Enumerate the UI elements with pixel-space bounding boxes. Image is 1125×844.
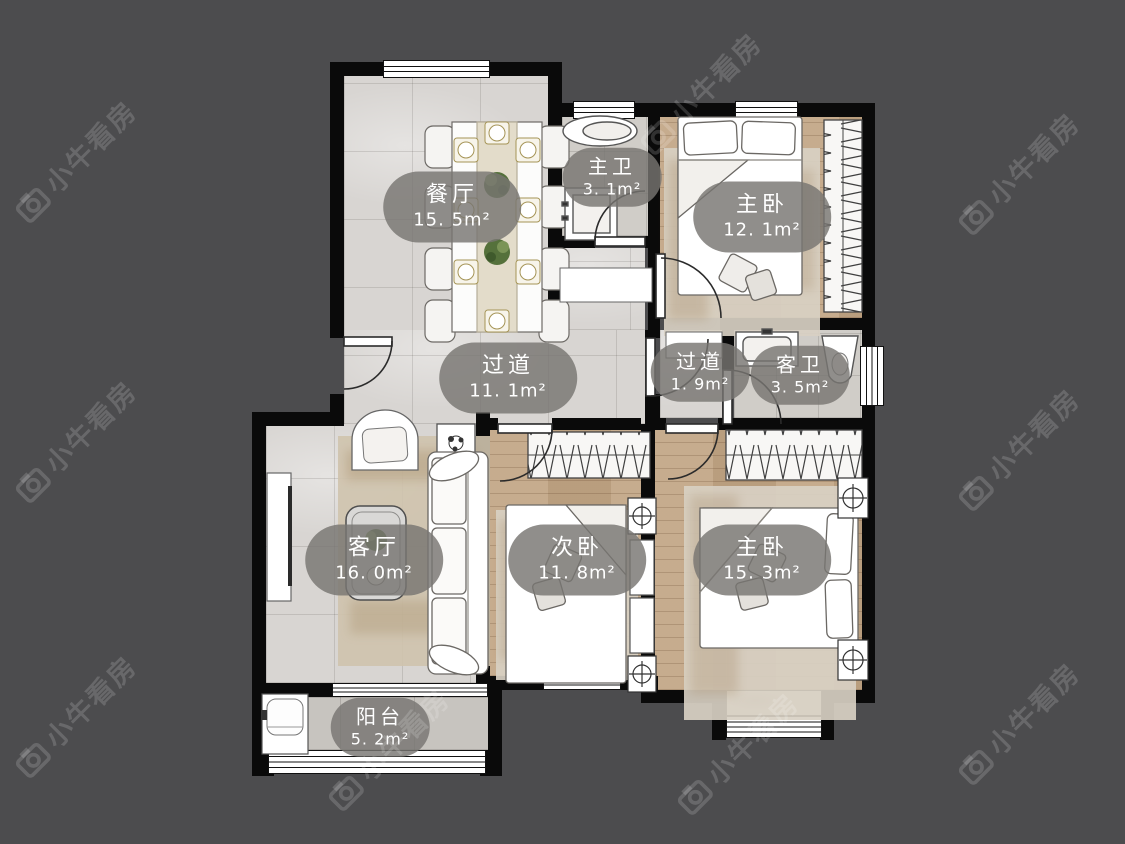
room-area: 1. 9m² — [671, 376, 730, 394]
room-name: 餐厅 — [413, 184, 491, 208]
room-name: 阳台 — [351, 706, 410, 728]
room-area: 11. 1m² — [469, 382, 547, 402]
room-name: 次卧 — [538, 537, 616, 561]
room-label-master-bedroom-bottom: 主卧 15. 3m² — [693, 525, 831, 596]
hallway-cabinet — [560, 268, 652, 302]
room-label-guest-bath: 客卫 3. 5m² — [751, 346, 850, 405]
room-name: 主卫 — [583, 156, 642, 178]
room-name: 过道 — [671, 351, 730, 373]
room-label-dining: 餐厅 15. 5m² — [383, 172, 521, 243]
room-area: 15. 3m² — [723, 564, 801, 584]
room-area: 11. 8m² — [538, 564, 616, 584]
room-label-hallway-small: 过道 1. 9m² — [651, 343, 750, 402]
wardrobe-icon — [726, 430, 862, 480]
room-area: 16. 0m² — [335, 564, 413, 584]
room-area: 12. 1m² — [723, 221, 801, 241]
tv-icon — [288, 486, 292, 586]
room-name: 主卧 — [723, 194, 801, 218]
floor-plan: 餐厅 15. 5m² 主卫 3. 1m² 主卧 12. 1m² 过道 11. 1… — [0, 0, 1125, 844]
room-label-balcony: 阳台 5. 2m² — [331, 698, 430, 757]
room-label-second-bedroom: 次卧 11. 8m² — [508, 525, 646, 596]
room-label-master-bath: 主卫 3. 1m² — [563, 148, 662, 207]
washing-machine-icon — [262, 694, 308, 754]
wardrobe-icon — [528, 432, 650, 478]
room-label-master-bedroom-top: 主卧 12. 1m² — [693, 182, 831, 253]
room-area: 3. 1m² — [583, 181, 642, 199]
room-area: 15. 5m² — [413, 211, 491, 231]
room-name: 过道 — [469, 355, 547, 379]
tv-stand — [267, 473, 292, 601]
armchair — [352, 410, 418, 470]
room-area: 5. 2m² — [351, 731, 410, 749]
room-label-living: 客厅 16. 0m² — [305, 525, 443, 596]
room-name: 客卫 — [771, 354, 830, 376]
toilet-icon — [563, 116, 637, 146]
furniture-layer — [0, 0, 1125, 844]
room-name: 主卧 — [723, 537, 801, 561]
room-label-hallway: 过道 11. 1m² — [439, 343, 577, 414]
room-area: 3. 5m² — [771, 379, 830, 397]
room-name: 客厅 — [335, 537, 413, 561]
